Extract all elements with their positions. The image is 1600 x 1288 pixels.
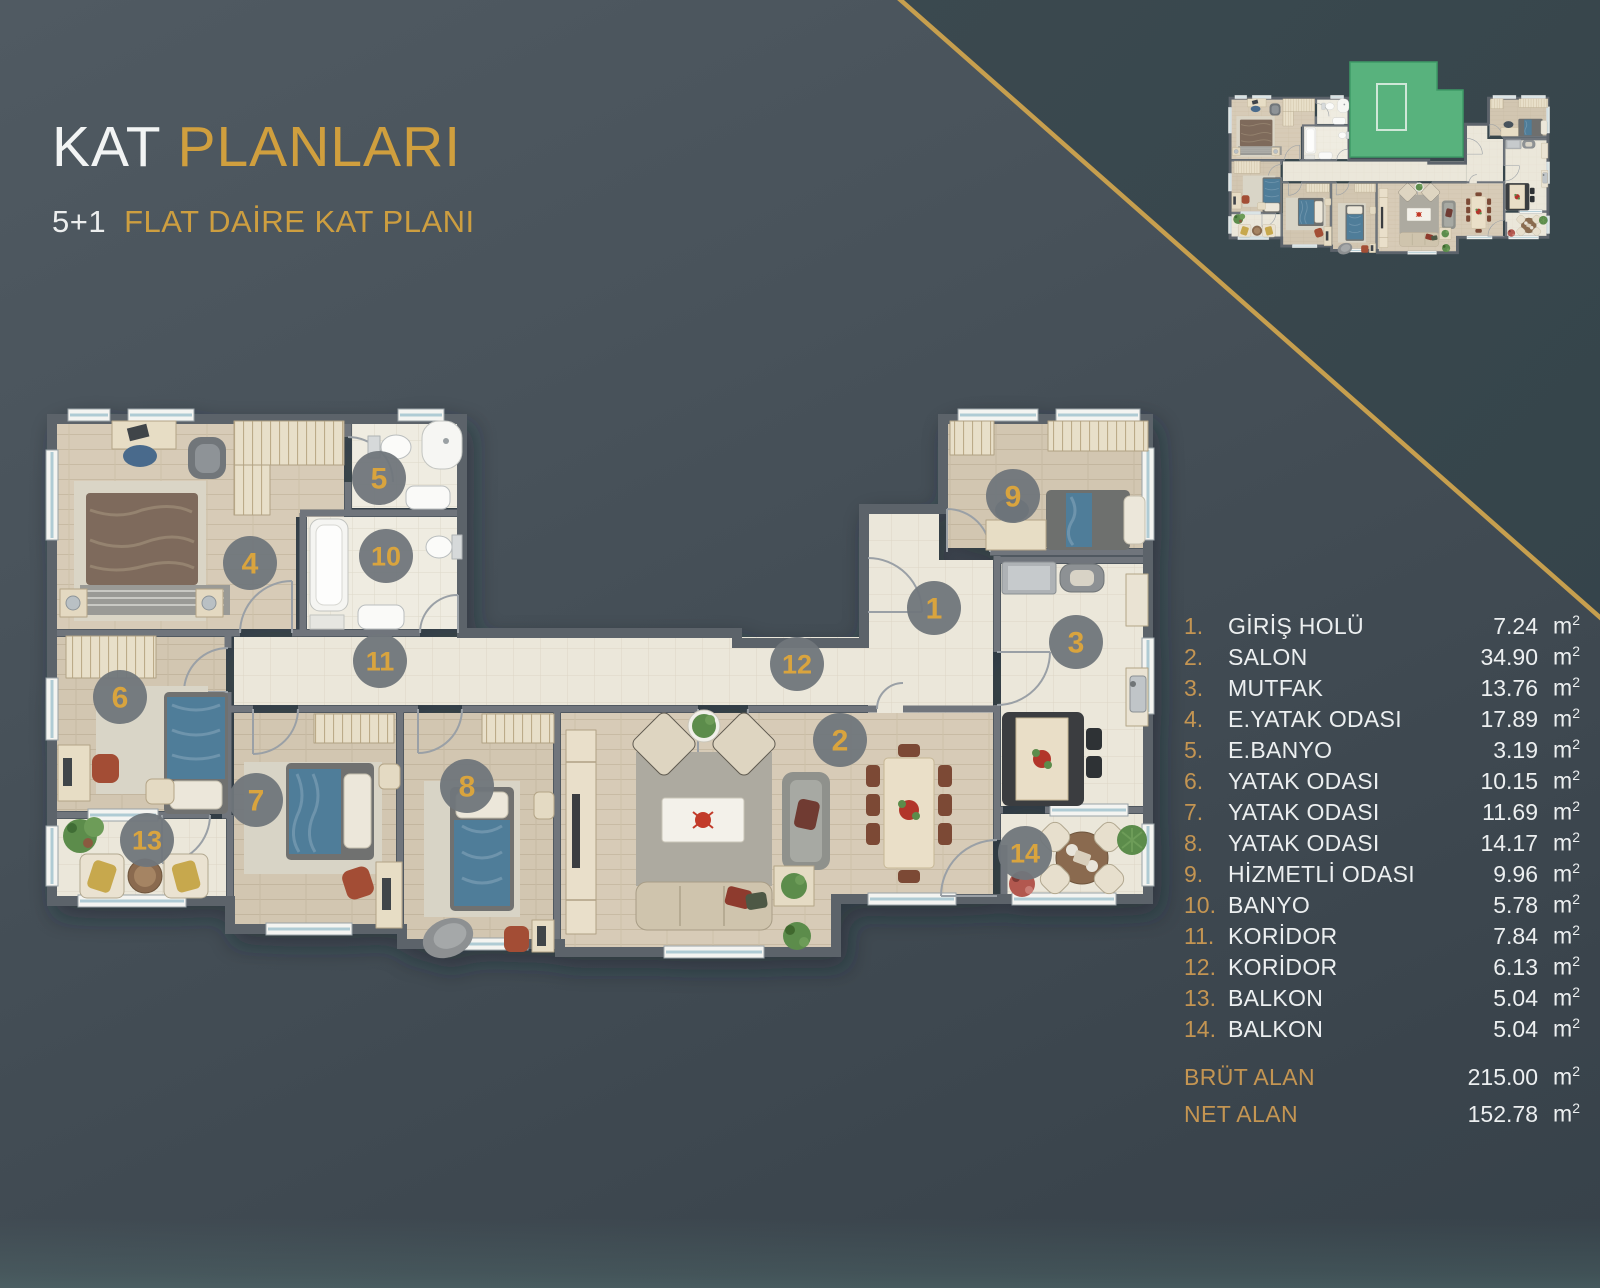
legend-row: 3.MUTFAK13.76m2 xyxy=(1184,674,1580,705)
legend-unit-sup: 2 xyxy=(1572,1100,1580,1116)
legend-room-name: SALON xyxy=(1228,644,1452,671)
legend-row: 4.E.YATAK ODASI17.89m2 xyxy=(1184,705,1580,736)
svg-text:8: 8 xyxy=(459,771,476,804)
legend-unit-sup: 2 xyxy=(1572,1015,1580,1031)
legend-total-row: BRÜT ALAN215.00m2 xyxy=(1184,1063,1580,1100)
legend-room-number: 3. xyxy=(1184,675,1228,702)
svg-text:2: 2 xyxy=(832,725,849,758)
legend-room-area: 5.04 xyxy=(1452,1016,1538,1043)
legend-room-unit: m2 xyxy=(1538,767,1580,795)
legend-room-name: MUTFAK xyxy=(1228,675,1452,702)
svg-text:12: 12 xyxy=(782,649,812,679)
page-subtitle: 5+1FLAT DAİRE KAT PLANI xyxy=(52,204,475,240)
room-marker: 3 xyxy=(1049,615,1103,669)
legend-row: 10.BANYO5.78m2 xyxy=(1184,891,1580,922)
legend-unit-sup: 2 xyxy=(1572,674,1580,690)
legend-room-unit: m2 xyxy=(1538,798,1580,826)
legend-room-unit: m2 xyxy=(1538,674,1580,702)
room-marker: 5 xyxy=(352,451,406,505)
legend-unit-sup: 2 xyxy=(1572,736,1580,752)
legend-room-name: BALKON xyxy=(1228,1016,1452,1043)
legend-unit-sup: 2 xyxy=(1572,829,1580,845)
legend-room-name: HİZMETLİ ODASI xyxy=(1228,861,1452,888)
legend-room-unit: m2 xyxy=(1538,705,1580,733)
legend-room-number: 14. xyxy=(1184,1016,1228,1043)
legend-room-number: 1. xyxy=(1184,613,1228,640)
room-marker: 4 xyxy=(223,536,277,590)
legend-room-name: YATAK ODASI xyxy=(1228,830,1452,857)
room-floors xyxy=(56,419,1148,952)
legend-room-name: YATAK ODASI xyxy=(1228,768,1452,795)
legend-unit-sup: 2 xyxy=(1572,1063,1580,1079)
legend-room-number: 2. xyxy=(1184,644,1228,671)
svg-text:7: 7 xyxy=(248,785,265,818)
legend-unit-sup: 2 xyxy=(1572,612,1580,628)
legend-row: 7.YATAK ODASI11.69m2 xyxy=(1184,798,1580,829)
legend-room-area: 9.96 xyxy=(1452,861,1538,888)
legend-room-area: 7.24 xyxy=(1452,613,1538,640)
legend-room-unit: m2 xyxy=(1538,860,1580,888)
legend-rooms: 1.GİRİŞ HOLÜ7.24m22.SALON34.90m23.MUTFAK… xyxy=(1184,612,1580,1046)
room-marker: 14 xyxy=(998,826,1052,880)
legend-unit-sup: 2 xyxy=(1572,705,1580,721)
legend-unit-sup: 2 xyxy=(1572,798,1580,814)
legend-room-number: 8. xyxy=(1184,830,1228,857)
legend-total-label: BRÜT ALAN xyxy=(1184,1064,1414,1091)
svg-text:13: 13 xyxy=(132,825,162,855)
legend-room-name: E.BANYO xyxy=(1228,737,1452,764)
legend-unit-sup: 2 xyxy=(1572,891,1580,907)
legend-row: 11.KORİDOR7.84m2 xyxy=(1184,922,1580,953)
legend-room-number: 12. xyxy=(1184,954,1228,981)
legend-room-number: 10. xyxy=(1184,892,1228,919)
legend-room-name: BANYO xyxy=(1228,892,1452,919)
room-marker: 11 xyxy=(353,634,407,688)
legend-room-area: 14.17 xyxy=(1452,830,1538,857)
legend-room-unit: m2 xyxy=(1538,829,1580,857)
legend: 1.GİRİŞ HOLÜ7.24m22.SALON34.90m23.MUTFAK… xyxy=(1184,612,1580,1137)
room-marker: 2 xyxy=(813,713,867,767)
legend-total-row: NET ALAN152.78m2 xyxy=(1184,1100,1580,1137)
room-marker: 1 xyxy=(907,581,961,635)
legend-unit-sup: 2 xyxy=(1572,643,1580,659)
legend-row: 9.HİZMETLİ ODASI9.96m2 xyxy=(1184,860,1580,891)
legend-room-area: 10.15 xyxy=(1452,768,1538,795)
legend-row: 8.YATAK ODASI14.17m2 xyxy=(1184,829,1580,860)
legend-total-unit: m2 xyxy=(1538,1063,1580,1091)
room-marker: 8 xyxy=(440,759,494,813)
svg-text:11: 11 xyxy=(366,646,395,676)
legend-room-unit: m2 xyxy=(1538,736,1580,764)
svg-text:14: 14 xyxy=(1010,838,1040,868)
legend-room-unit: m2 xyxy=(1538,922,1580,950)
legend-room-area: 5.04 xyxy=(1452,985,1538,1012)
page-title: KAT PLANLARI xyxy=(52,118,475,178)
legend-room-area: 6.13 xyxy=(1452,954,1538,981)
legend-room-name: E.YATAK ODASI xyxy=(1228,706,1452,733)
legend-room-area: 3.19 xyxy=(1452,737,1538,764)
legend-unit-sup: 2 xyxy=(1572,953,1580,969)
svg-text:9: 9 xyxy=(1005,481,1022,514)
subtitle-prefix: 5+1 xyxy=(52,204,106,239)
legend-row: 5.E.BANYO3.19m2 xyxy=(1184,736,1580,767)
legend-room-area: 5.78 xyxy=(1452,892,1538,919)
legend-room-unit: m2 xyxy=(1538,891,1580,919)
svg-text:1: 1 xyxy=(926,593,943,626)
room-marker: 12 xyxy=(770,637,824,691)
legend-room-area: 7.84 xyxy=(1452,923,1538,950)
legend-room-unit: m2 xyxy=(1538,953,1580,981)
legend-room-number: 13. xyxy=(1184,985,1228,1012)
legend-room-name: KORİDOR xyxy=(1228,923,1452,950)
legend-total-label: NET ALAN xyxy=(1184,1101,1414,1128)
svg-text:6: 6 xyxy=(112,682,129,715)
legend-room-unit: m2 xyxy=(1538,643,1580,671)
header: KAT PLANLARI 5+1FLAT DAİRE KAT PLANI xyxy=(52,118,475,240)
legend-room-area: 17.89 xyxy=(1452,706,1538,733)
legend-room-number: 11. xyxy=(1184,923,1228,950)
legend-row: 1.GİRİŞ HOLÜ7.24m2 xyxy=(1184,612,1580,643)
svg-text:3: 3 xyxy=(1068,627,1085,660)
legend-room-number: 6. xyxy=(1184,768,1228,795)
legend-unit-sup: 2 xyxy=(1572,984,1580,1000)
legend-room-unit: m2 xyxy=(1538,612,1580,640)
subtitle-text: FLAT DAİRE KAT PLANI xyxy=(124,204,475,239)
legend-totals: BRÜT ALAN215.00m2NET ALAN152.78m2 xyxy=(1184,1063,1580,1137)
svg-text:10: 10 xyxy=(371,541,401,571)
room-marker: 13 xyxy=(120,813,174,867)
room-marker: 6 xyxy=(93,670,147,724)
svg-text:5: 5 xyxy=(371,463,388,496)
legend-total-area: 152.78 xyxy=(1414,1101,1538,1128)
title-primary: KAT xyxy=(52,115,161,179)
legend-room-area: 13.76 xyxy=(1452,675,1538,702)
legend-unit-sup: 2 xyxy=(1572,922,1580,938)
legend-room-number: 7. xyxy=(1184,799,1228,826)
legend-row: 2.SALON34.90m2 xyxy=(1184,643,1580,674)
legend-row: 13.BALKON5.04m2 xyxy=(1184,984,1580,1015)
legend-room-number: 4. xyxy=(1184,706,1228,733)
room-marker: 9 xyxy=(986,469,1040,523)
legend-room-unit: m2 xyxy=(1538,984,1580,1012)
svg-text:4: 4 xyxy=(242,548,259,581)
legend-room-name: GİRİŞ HOLÜ xyxy=(1228,613,1452,640)
legend-room-unit: m2 xyxy=(1538,1015,1580,1043)
legend-unit-sup: 2 xyxy=(1572,860,1580,876)
plan-thumbnail xyxy=(1228,62,1549,257)
legend-row: 12.KORİDOR6.13m2 xyxy=(1184,953,1580,984)
legend-unit-sup: 2 xyxy=(1572,767,1580,783)
legend-room-area: 11.69 xyxy=(1452,799,1538,826)
legend-room-name: KORİDOR xyxy=(1228,954,1452,981)
legend-room-name: BALKON xyxy=(1228,985,1452,1012)
page: { "header": { "title_primary": "KAT", "t… xyxy=(0,0,1600,1288)
room-marker: 7 xyxy=(229,773,283,827)
legend-row: 6.YATAK ODASI10.15m2 xyxy=(1184,767,1580,798)
legend-row: 14.BALKON5.04m2 xyxy=(1184,1015,1580,1046)
title-secondary: PLANLARI xyxy=(177,115,461,179)
legend-room-name: YATAK ODASI xyxy=(1228,799,1452,826)
legend-total-area: 215.00 xyxy=(1414,1064,1538,1091)
legend-total-unit: m2 xyxy=(1538,1100,1580,1128)
legend-room-number: 9. xyxy=(1184,861,1228,888)
legend-room-area: 34.90 xyxy=(1452,644,1538,671)
room-marker: 10 xyxy=(359,529,413,583)
legend-room-number: 5. xyxy=(1184,737,1228,764)
